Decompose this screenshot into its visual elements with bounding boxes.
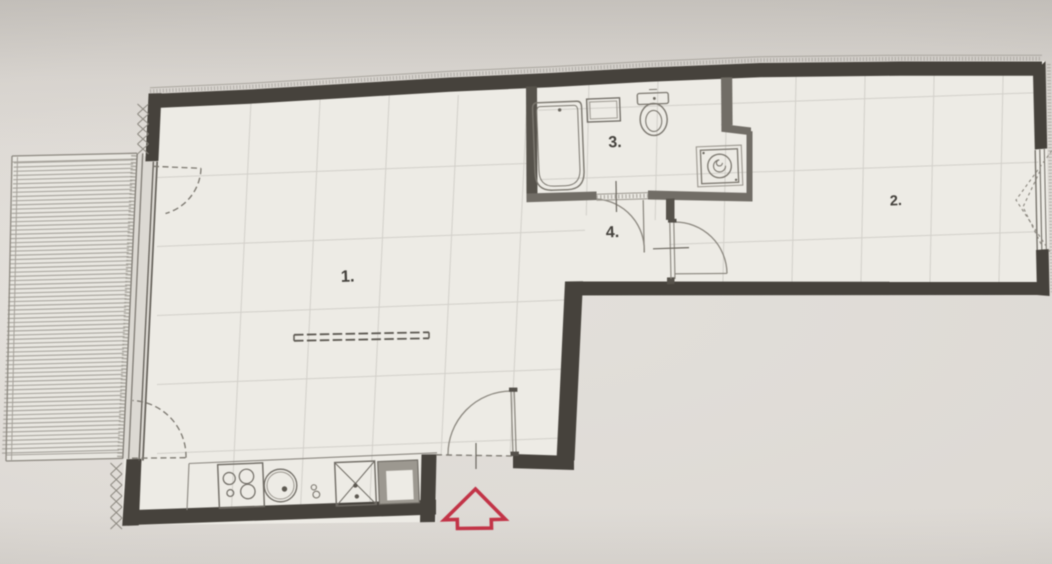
svg-text:1.: 1. — [340, 267, 354, 285]
svg-text:2.: 2. — [890, 193, 903, 209]
svg-text:3.: 3. — [608, 134, 622, 151]
svg-text:4.: 4. — [606, 224, 620, 241]
